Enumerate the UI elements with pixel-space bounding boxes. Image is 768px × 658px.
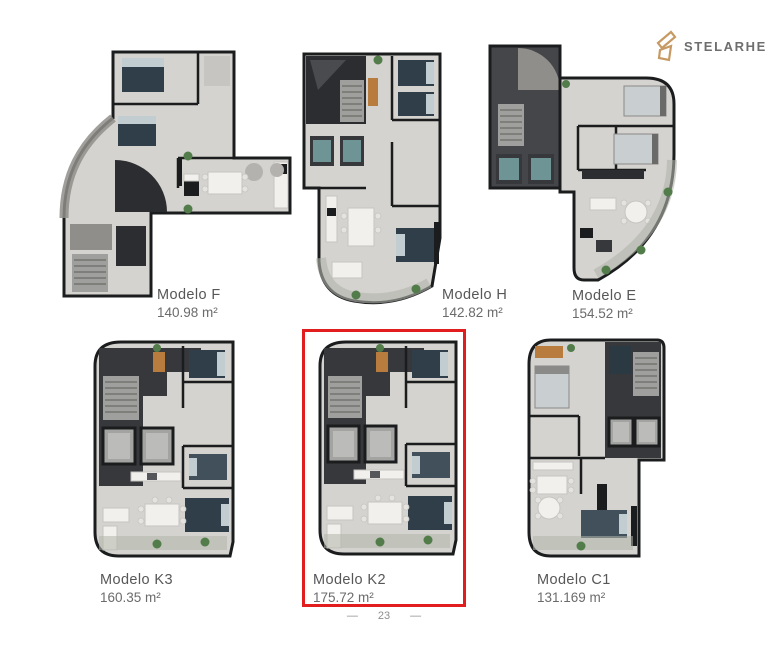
sofa <box>332 262 362 278</box>
plant-icon <box>184 152 193 161</box>
kitchen-counter <box>354 470 404 479</box>
plant-icon <box>184 205 193 214</box>
appliance <box>596 240 612 252</box>
wood-cabinet <box>376 352 388 372</box>
c1-core <box>605 342 661 458</box>
kitchen-island <box>184 174 199 196</box>
plant-icon <box>376 344 384 352</box>
wood-cabinet <box>153 352 165 372</box>
model-label-e: Modelo E 154.52 m² <box>572 287 636 323</box>
kitchen-counter <box>582 170 644 179</box>
plant-icon <box>664 188 673 197</box>
plant-icon <box>352 291 361 300</box>
model-label-k3: Modelo K3 160.35 m² <box>100 571 173 607</box>
model-label-c1: Modelo C1 131.169 m² <box>537 571 611 607</box>
model-area: 160.35 m² <box>100 590 173 607</box>
model-area: 140.98 m² <box>157 305 221 322</box>
plant-icon <box>602 266 611 275</box>
plant-icon <box>153 540 162 549</box>
wood-cabinet <box>535 346 563 358</box>
round-table <box>535 497 563 519</box>
model-area: 175.72 m² <box>313 590 386 607</box>
footer-dash-right: — <box>410 610 421 622</box>
tall-cabinet <box>597 484 607 512</box>
modelo-e-drawing <box>486 42 684 288</box>
plant-icon <box>201 538 210 547</box>
dining-table <box>202 172 248 194</box>
footer-dash-left: — <box>347 610 358 622</box>
floorplan-modelo-f[interactable] <box>58 46 294 303</box>
plant-icon <box>153 344 161 352</box>
kitchen-counter <box>533 462 573 470</box>
bed-icon <box>396 222 439 264</box>
model-area: 142.82 m² <box>442 305 507 322</box>
h-core <box>306 56 366 124</box>
floorplan-modelo-e[interactable] <box>486 42 684 293</box>
bed-icon <box>535 366 569 408</box>
modelo-h-drawing <box>296 46 448 314</box>
floorplan-modelo-k2[interactable] <box>312 338 462 571</box>
dining-table <box>530 476 574 494</box>
model-name: Modelo F <box>157 286 221 304</box>
model-name: Modelo C1 <box>537 571 611 589</box>
appliance <box>580 228 593 238</box>
model-name: Modelo E <box>572 287 636 305</box>
plant-icon <box>424 536 433 545</box>
model-name: Modelo K3 <box>100 571 173 589</box>
plant-icon <box>577 542 586 551</box>
dining-table <box>621 200 651 224</box>
round-table <box>270 163 284 177</box>
page-number: 23 <box>378 610 390 622</box>
model-label-f: Modelo F 140.98 m² <box>157 286 221 322</box>
e-stair-tower <box>490 46 560 188</box>
model-name: Modelo K2 <box>313 571 386 589</box>
tv-wall <box>178 158 182 186</box>
model-area: 154.52 m² <box>572 306 636 323</box>
plant-icon <box>376 538 385 547</box>
page-footer: — 23 — <box>0 610 768 622</box>
modelo-c1-drawing <box>521 336 671 568</box>
plant-icon <box>374 56 383 65</box>
plant-icon <box>562 80 570 88</box>
plant-icon <box>412 285 421 294</box>
floorplan-modelo-c1[interactable] <box>521 336 671 573</box>
kitchen-island <box>590 198 616 210</box>
kitchen-counter <box>131 472 181 481</box>
modelo-f-drawing <box>58 46 294 298</box>
kitchen-counter <box>326 196 337 242</box>
brand-name: STELARHE <box>684 39 767 54</box>
model-label-k2: Modelo K2 175.72 m² <box>313 571 386 607</box>
modelo-k2-drawing <box>312 338 462 566</box>
floorplan-modelo-k3[interactable] <box>87 338 239 573</box>
wood-cabinet <box>368 78 378 106</box>
model-area: 131.169 m² <box>537 590 611 607</box>
plant-icon <box>637 246 646 255</box>
plant-icon <box>567 344 575 352</box>
bathroom <box>204 56 230 86</box>
floorplan-modelo-h[interactable] <box>296 46 448 319</box>
modelo-k3-drawing <box>87 338 239 568</box>
